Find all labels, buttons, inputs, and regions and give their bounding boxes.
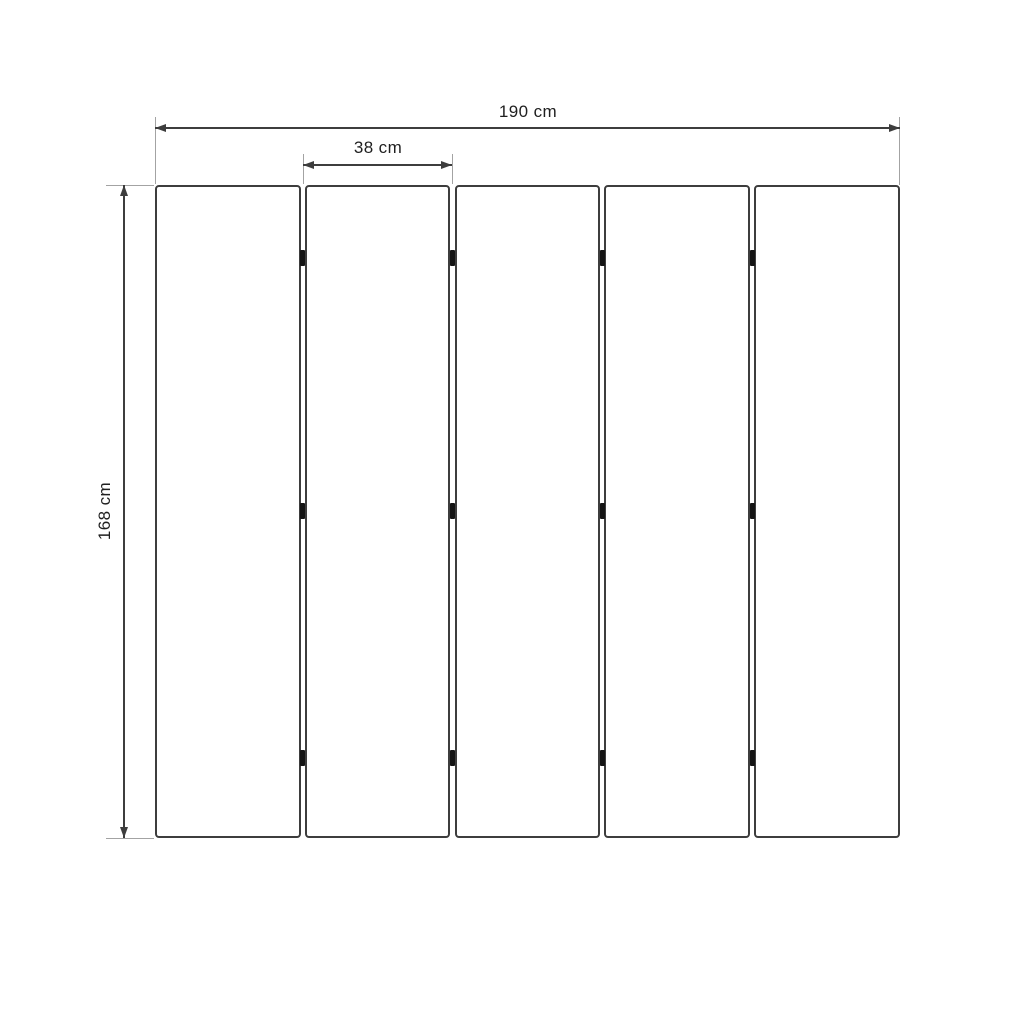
hinge-mark: [600, 750, 605, 766]
extension-line-panel-width-left: [303, 154, 304, 184]
panel-dimension-diagram: 190 cm 38 cm 168 cm: [0, 0, 1024, 1024]
panel: [754, 185, 900, 838]
hinge-mark: [450, 750, 455, 766]
hinge-mark: [300, 750, 305, 766]
dimension-label-total-width: 190 cm: [499, 102, 557, 122]
panel: [604, 185, 750, 838]
dimension-line-panel-width: [303, 164, 453, 166]
hinge-mark: [600, 250, 605, 266]
panel: [305, 185, 451, 838]
extension-line-panel-width-right: [452, 154, 453, 184]
panel: [455, 185, 601, 838]
hinge-mark: [750, 250, 755, 266]
extension-line-height-top: [106, 185, 154, 186]
hinge-mark: [300, 503, 305, 519]
hinge-mark: [300, 250, 305, 266]
extension-line-height-bottom: [106, 838, 154, 839]
hinge-mark: [750, 750, 755, 766]
hinge-mark: [450, 503, 455, 519]
dimension-label-height: 168 cm: [95, 482, 115, 540]
hinge-mark: [600, 503, 605, 519]
hinge-mark: [450, 250, 455, 266]
panel: [155, 185, 301, 838]
dimension-line-height: [123, 185, 125, 838]
dimension-line-total-width: [155, 127, 900, 129]
dimension-label-panel-width: 38 cm: [354, 138, 402, 158]
hinge-mark: [750, 503, 755, 519]
